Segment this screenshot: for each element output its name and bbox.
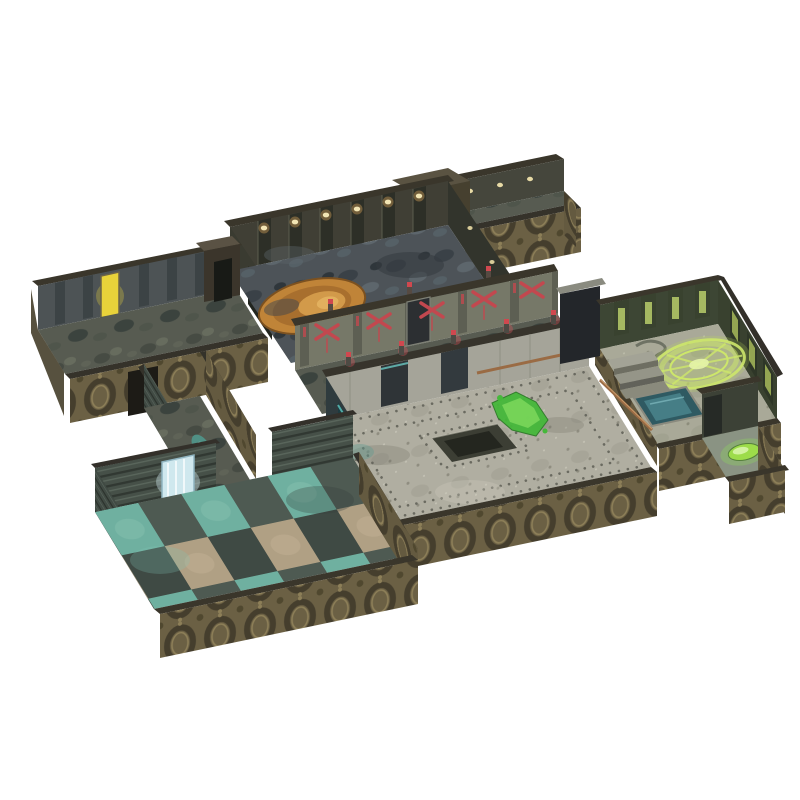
conduit-wall-door — [407, 297, 430, 346]
alcove-entry-door — [704, 394, 722, 437]
floor-grime-patch — [376, 252, 444, 278]
wall-light — [467, 226, 472, 230]
terrain-scene — [0, 0, 800, 800]
wall-light — [497, 183, 503, 187]
terrain-photo — [0, 0, 800, 800]
wall-light — [489, 260, 494, 264]
wall-light — [527, 177, 533, 181]
hall-door — [381, 360, 408, 407]
hall-door — [441, 347, 468, 394]
floor-tint — [286, 486, 354, 514]
door-pillar — [556, 278, 606, 364]
floor-tint — [130, 546, 190, 574]
floor-grime-patch — [264, 246, 316, 264]
